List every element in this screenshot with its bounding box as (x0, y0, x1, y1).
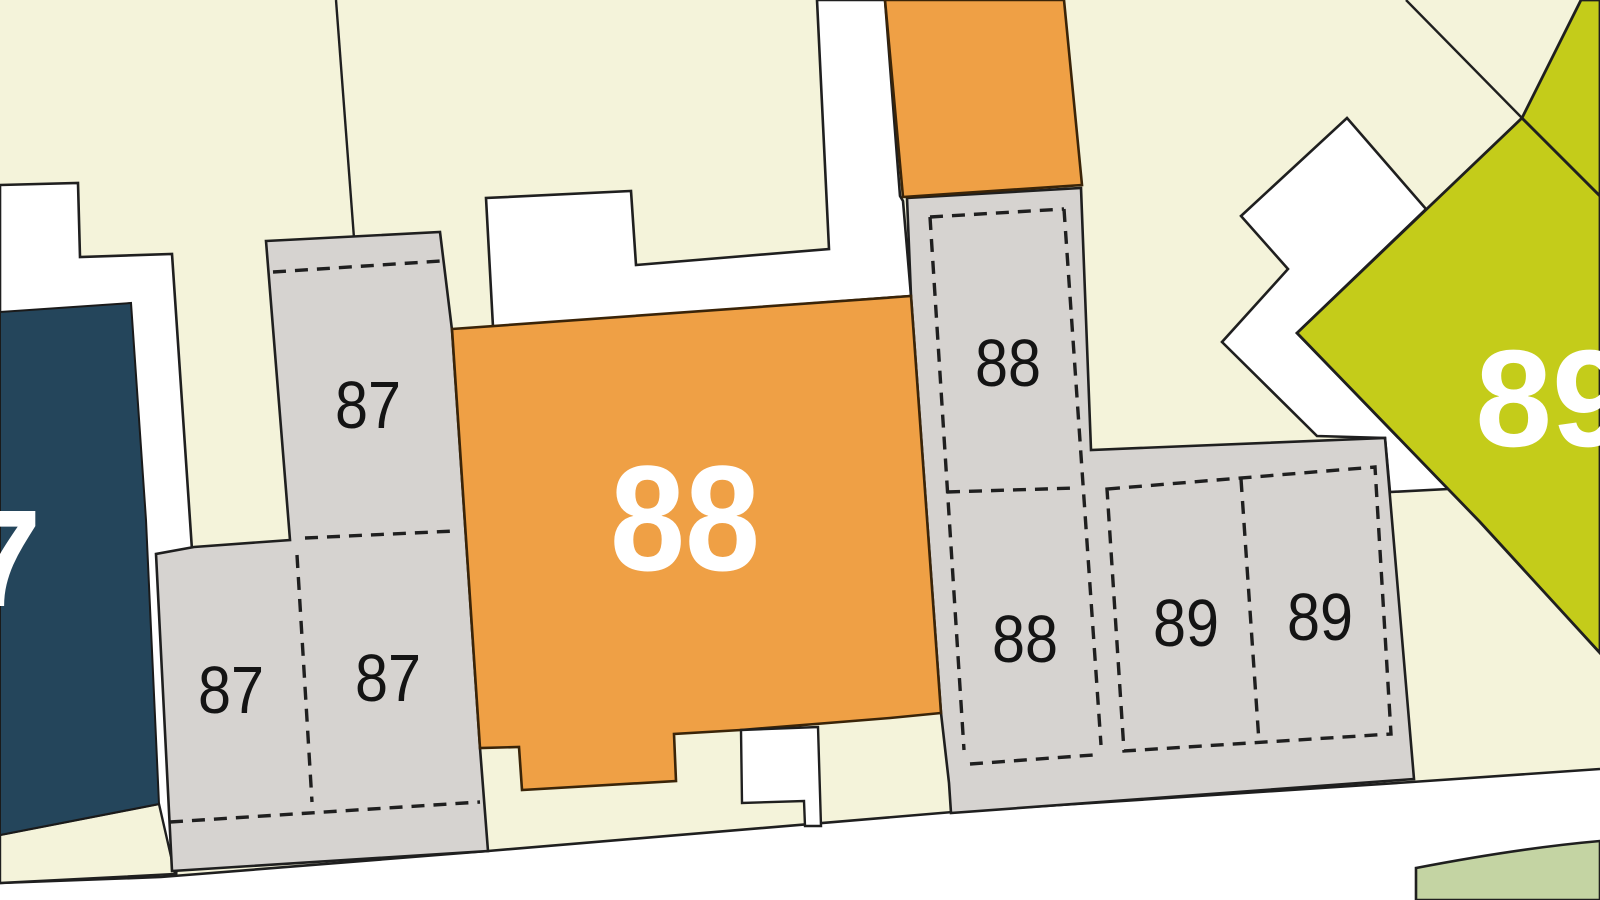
svg-text:89: 89 (1475, 322, 1600, 476)
svg-text:88: 88 (992, 602, 1058, 677)
svg-text:87: 87 (335, 368, 401, 443)
svg-text:88: 88 (975, 326, 1041, 401)
svg-text:88: 88 (610, 434, 760, 602)
svg-text:87: 87 (355, 641, 421, 716)
svg-text:87: 87 (198, 653, 264, 728)
svg-text:89: 89 (1153, 586, 1219, 661)
svg-text:89: 89 (1287, 580, 1353, 655)
svg-text:7: 7 (0, 482, 41, 636)
